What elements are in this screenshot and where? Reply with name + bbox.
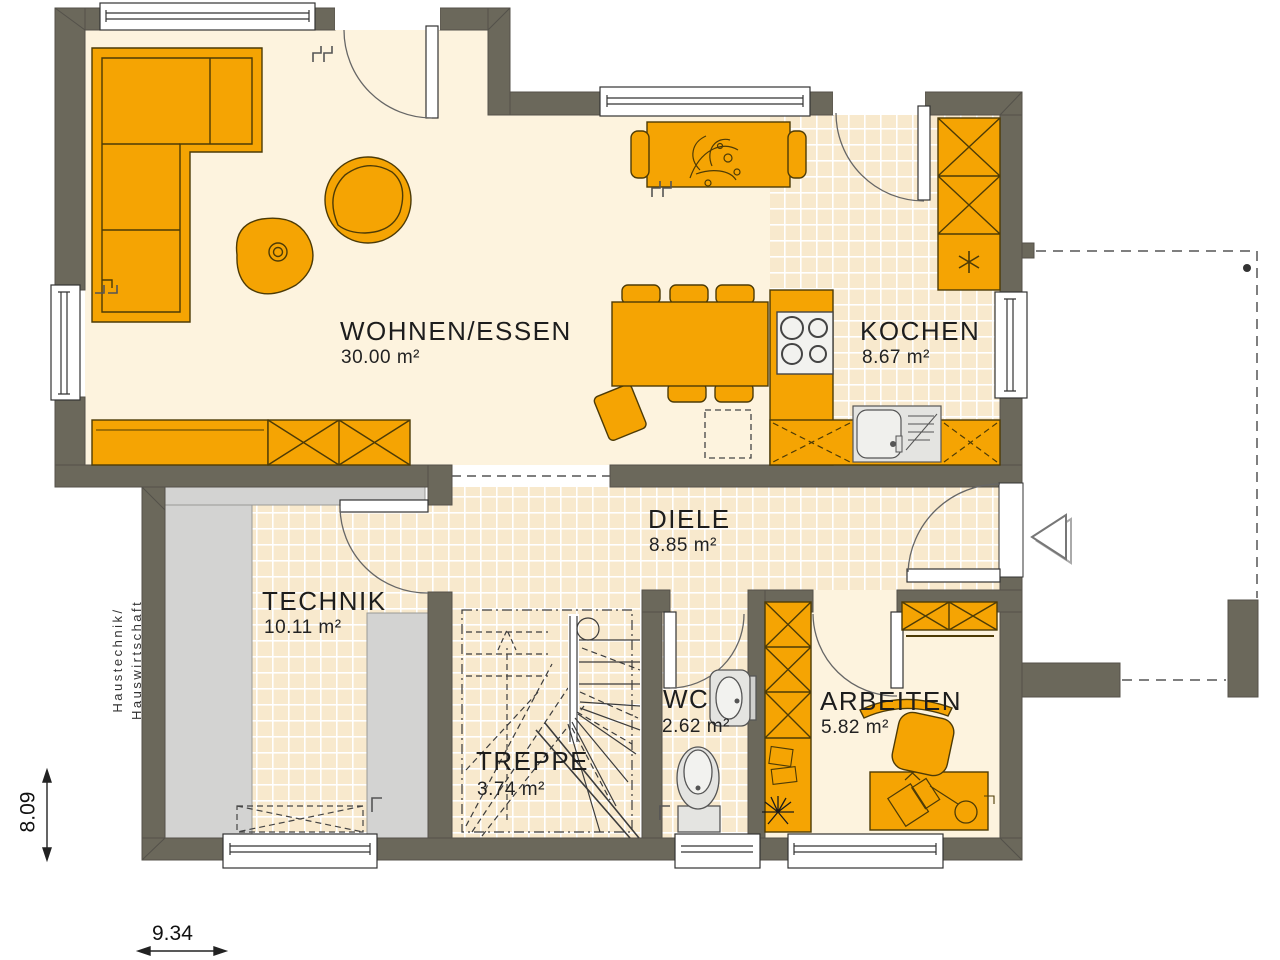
window-arbeiten-bottom	[788, 834, 943, 868]
room-label-arbeiten: ARBEITEN	[820, 686, 962, 717]
window-kitchen-right	[995, 292, 1027, 398]
room-label-wc: WC	[663, 684, 709, 715]
room-area-treppe: 3.74 m²	[477, 779, 545, 801]
dimension-height-label: 8.09	[16, 792, 40, 833]
room-area-kochen: 8.67 m²	[862, 347, 930, 369]
office-cabinet	[762, 602, 811, 832]
dimension-width-label: 9.34	[152, 922, 193, 946]
living-cabinets	[92, 420, 410, 465]
armchair	[325, 157, 411, 243]
utility-annotation-line2: Hauswirtschaft	[127, 600, 146, 720]
floorplan-drawing	[0, 0, 1280, 960]
room-area-wohnen: 30.00 m²	[341, 347, 420, 369]
room-area-arbeiten: 5.82 m²	[821, 717, 889, 739]
entrance-arrow-icon	[1032, 515, 1071, 563]
floorplan-page: WOHNEN/ESSEN 30.00 m² KOCHEN 8.67 m² DIE…	[0, 0, 1280, 960]
window-kitchen-top	[600, 87, 810, 116]
room-label-wohnen: WOHNEN/ESSEN	[340, 316, 572, 347]
room-label-diele: DIELE	[648, 504, 731, 535]
room-area-technik: 10.11 m²	[264, 617, 342, 639]
room-label-kochen: KOCHEN	[860, 316, 980, 347]
toilet-icon	[677, 747, 720, 832]
window-wc-bottom	[675, 834, 760, 868]
utility-annotation: Haustechnik/ Hauswirtschaft	[108, 600, 238, 720]
room-area-wc: 2.62 m²	[662, 716, 730, 738]
window-technik-bottom	[223, 834, 377, 868]
kitchen-tall-cabinets	[938, 118, 1000, 290]
utility-annotation-line1: Haustechnik/	[108, 600, 127, 720]
room-label-treppe: TREPPE	[476, 746, 589, 777]
canopy-outline	[1036, 251, 1257, 680]
room-area-diele: 8.85 m²	[649, 535, 717, 557]
window-living-top	[100, 3, 315, 30]
sideboard	[631, 122, 806, 187]
window-living-left	[51, 285, 80, 400]
room-label-technik: TECHNIK	[262, 586, 387, 617]
sink-icon	[853, 406, 941, 462]
